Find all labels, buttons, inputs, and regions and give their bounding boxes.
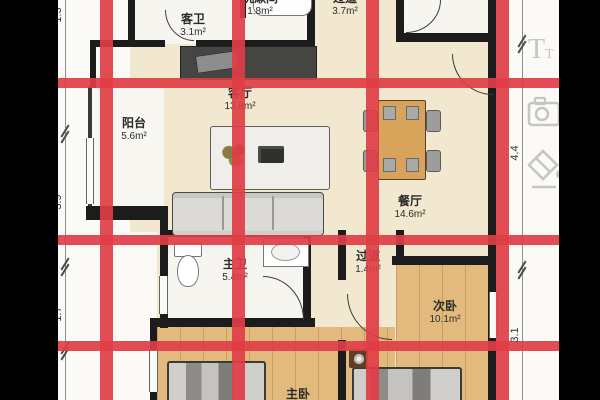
sofa-cushion-divider [222,196,224,230]
text-tool-icon[interactable]: TT [528,34,554,66]
grid-line-horizontal [58,78,559,88]
grid-line-horizontal [58,235,559,245]
grid-line-horizontal [58,341,559,351]
placemat [406,158,419,172]
placemat [383,106,396,120]
grid-line-vertical [232,0,245,400]
wardrobe-left [167,361,266,400]
toilet-bowl [177,255,199,287]
ceiling-light-bulb [354,354,364,364]
window [149,350,158,392]
room-name: 餐厅 [375,195,445,209]
pillarbox-right [559,0,600,400]
floorplan-screenshot: 客卫 3.1m² 洗漱间 1.8m² 过道 3.7m² 客厅 13.8m² 阳台… [0,0,600,400]
wall [135,40,165,47]
pillarbox-left [0,0,58,400]
placemat [406,106,419,120]
room-area: 10.1m² [410,314,480,326]
sofa-cushion-divider [272,196,274,230]
room-label-guest-bath: 客卫 3.1m² [158,13,228,38]
room-name: 次卧 [410,300,480,314]
camera-icon[interactable] [527,96,563,135]
dimension-label-right-2: 3.1 [509,318,523,352]
wall [392,256,492,265]
sofa [172,192,324,236]
sink-basin [271,243,300,261]
grid-line-vertical [496,0,509,400]
wall [396,33,492,42]
room-area: 3.1m² [158,27,228,39]
dimension-label-right-1: 4.4 [509,136,523,170]
placemat [383,158,396,172]
dining-chair [426,150,441,172]
room-label-dining-room: 餐厅 14.6m² [375,195,445,220]
room-label-master-bedroom: 主卧 [263,388,333,400]
grid-line-vertical [366,0,379,400]
grid-line-vertical [100,0,113,400]
room-label-second-bedroom: 次卧 10.1m² [410,300,480,325]
window [86,138,94,204]
room-name: 主卧 [263,388,333,400]
room-name: 客卫 [158,13,228,27]
tray-decor [258,146,284,163]
window [159,276,168,314]
wall [86,206,168,220]
room-area: 14.6m² [375,209,445,221]
dining-chair [426,110,441,132]
